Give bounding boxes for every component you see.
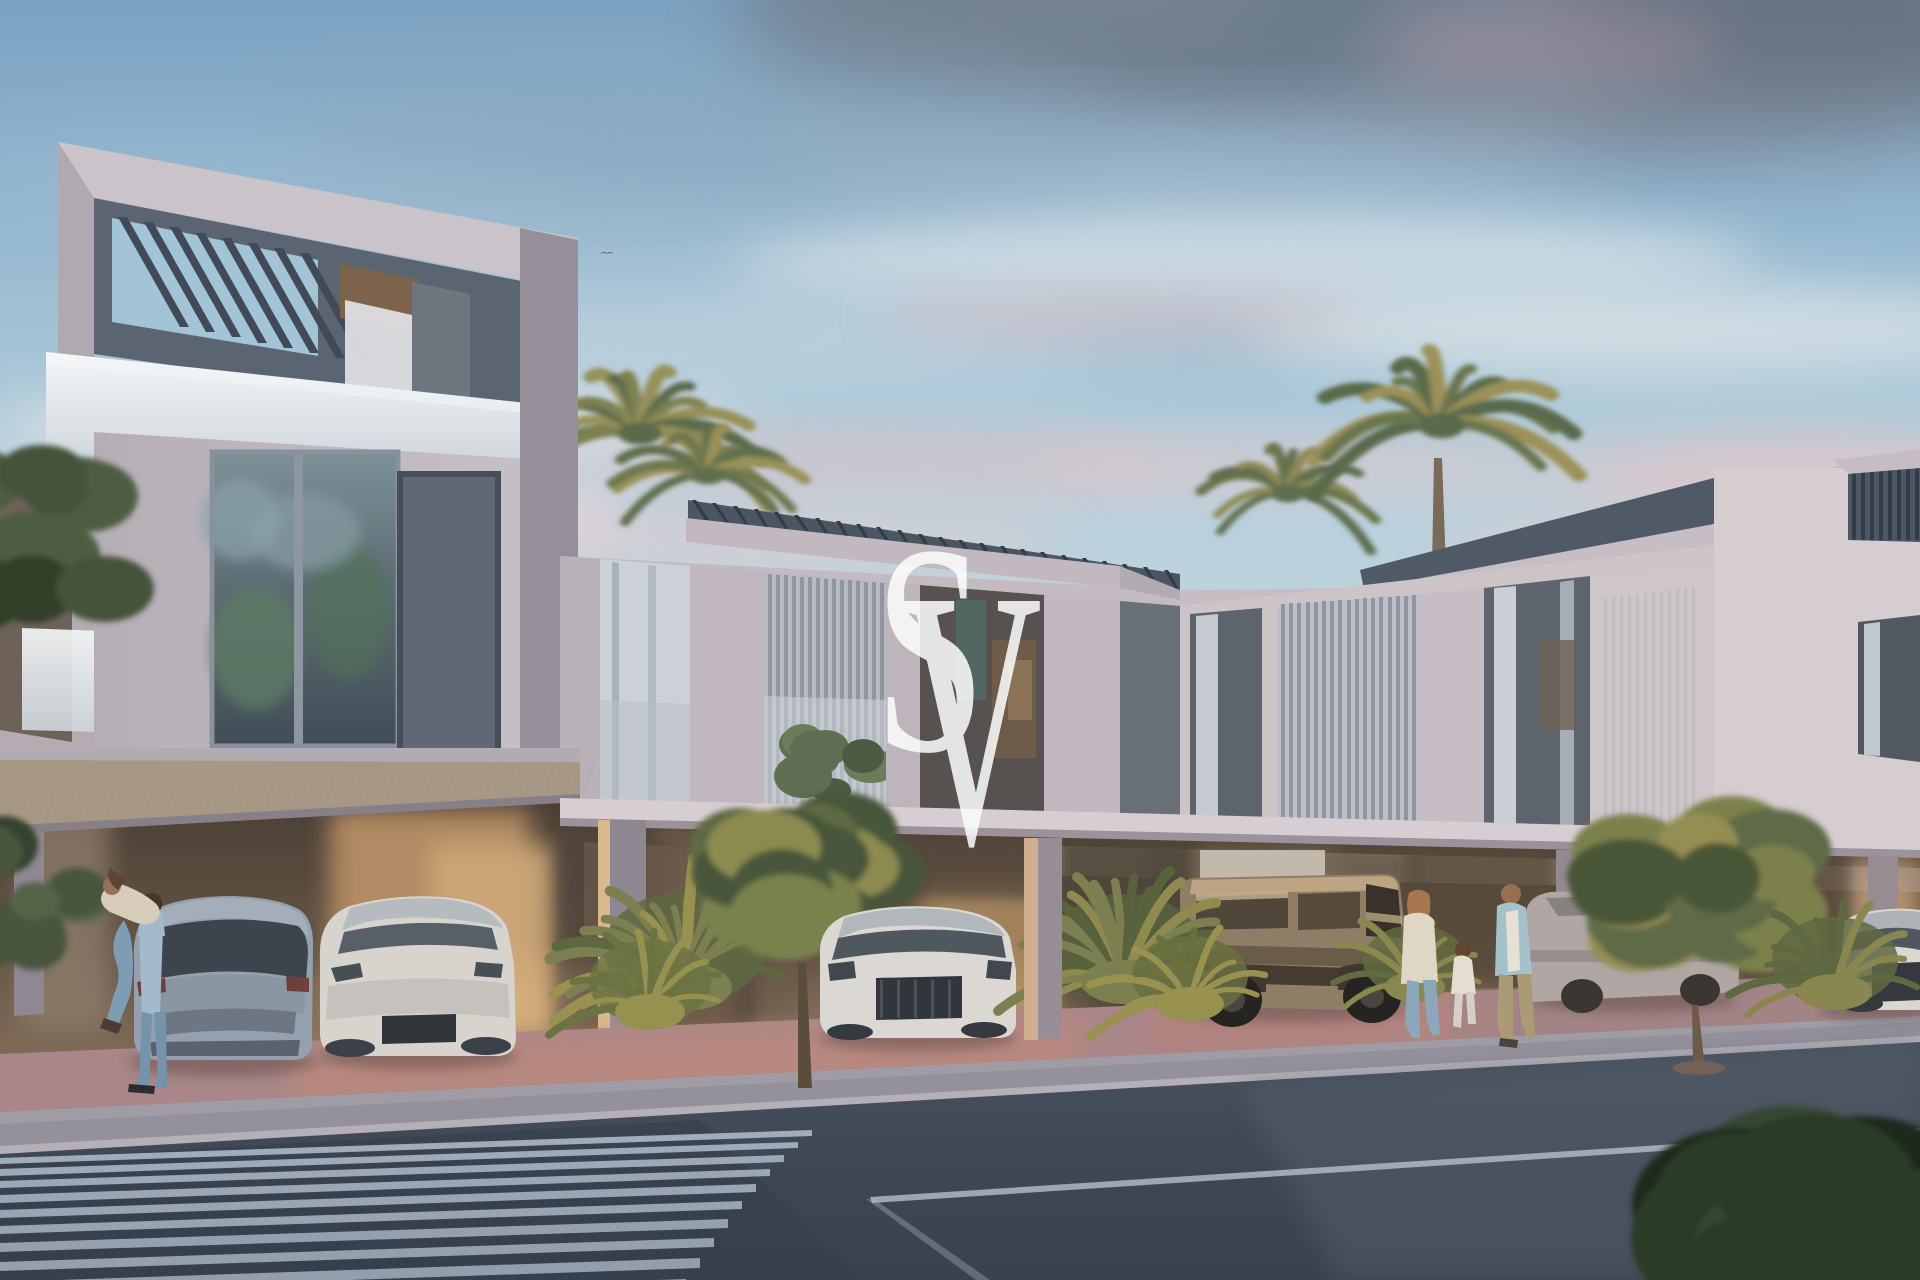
svg-text:V: V xyxy=(900,514,1042,922)
